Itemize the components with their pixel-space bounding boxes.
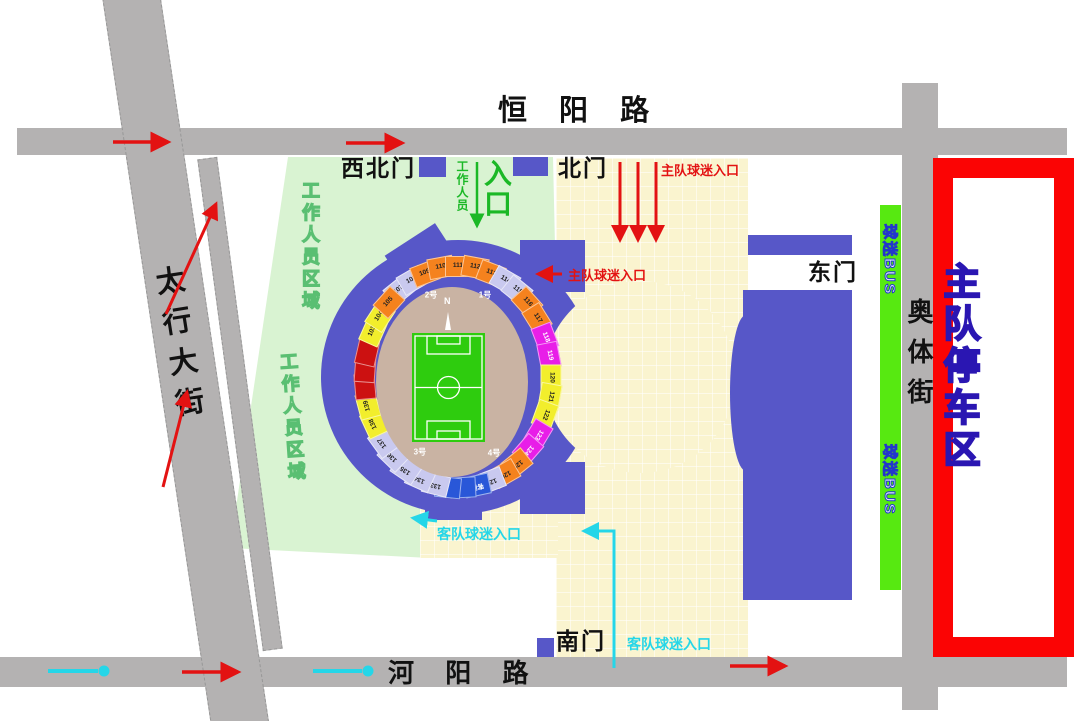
east-building xyxy=(743,290,852,600)
away-fans-label-south: 客队球迷入口 xyxy=(627,637,711,651)
north-compass: N xyxy=(444,296,451,306)
stadium-east-opening xyxy=(544,281,736,473)
fans-bus-label-bottom: 球迷BUS xyxy=(880,444,901,516)
north-gate-building xyxy=(513,157,548,176)
gate-label-northwest: 西北门 xyxy=(341,157,416,180)
stadium-gate-number: 2号 xyxy=(425,290,437,301)
stadium-ne-entrance-tab xyxy=(520,240,585,292)
road-label-hengyang: 恒 阳 路 xyxy=(498,97,661,126)
stadium-gate-number: 3号 xyxy=(414,446,426,457)
road-label-aoti: 奥体街 xyxy=(906,298,932,418)
stadium-gate-number: 4号 xyxy=(488,448,500,459)
stadium-south-entrance-tab xyxy=(425,498,482,520)
stadium-area-map: 1071081091101111121131141151161171181191… xyxy=(0,0,1080,721)
away-fans-label-stadium: 客队球迷入口 xyxy=(437,527,521,541)
staff-area-label-1: 工作人员区域 xyxy=(301,181,319,313)
fans-bus-label-top: 球迷BUS xyxy=(880,224,901,296)
home-parking-label: 主队停车区 xyxy=(933,262,979,472)
northwest-gate-building xyxy=(419,157,446,177)
home-fans-label-ne: 主队球迷入口 xyxy=(568,269,646,282)
south-gate-building xyxy=(537,638,554,657)
staff-entrance-sublabel: 工作人员 xyxy=(456,160,468,212)
soccer-pitch xyxy=(412,333,485,442)
stadium-se-entrance-tab xyxy=(520,462,585,514)
gate-label-east: 东门 xyxy=(808,261,858,284)
gate-label-south: 南门 xyxy=(556,630,606,653)
gate-label-north: 北门 xyxy=(558,157,608,180)
home-fans-label-north: 主队球迷入口 xyxy=(661,164,739,177)
stadium-gate-number: 1号 xyxy=(479,290,491,301)
road-label-heyang: 河 阳 路 xyxy=(388,660,540,686)
east-building-north-wing xyxy=(748,235,852,255)
staff-entrance-label: 入口 xyxy=(482,159,510,219)
